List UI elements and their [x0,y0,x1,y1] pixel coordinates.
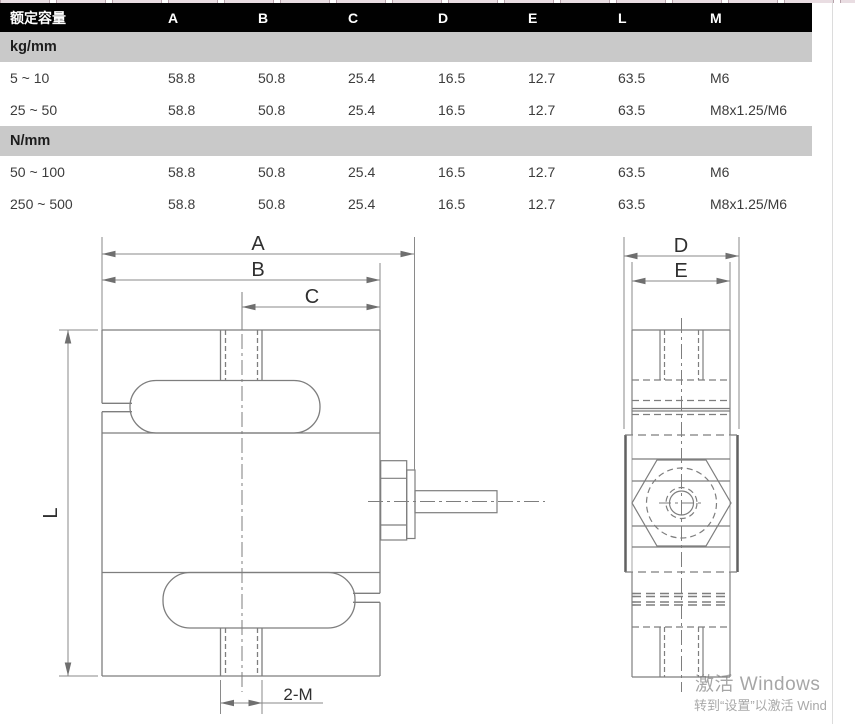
dim-label-c: C [305,286,319,308]
front-dimensions [59,237,415,714]
side-view [625,318,738,692]
technical-drawing: A B C L 2-M [0,0,855,724]
dim-label-l: L [40,507,62,518]
dim-label-b: B [251,259,264,281]
dim-label-a: A [251,233,265,255]
cable-connector [368,461,545,540]
page-edge-divider [832,0,833,724]
dim-label-e: E [674,260,687,282]
dim-label-2m: 2-M [283,685,312,704]
page: 额定容量 A B C D E L M kg/mm 5 ~ 10 58.8 50.… [0,0,855,724]
dim-label-d: D [674,235,688,257]
front-view [102,292,380,692]
